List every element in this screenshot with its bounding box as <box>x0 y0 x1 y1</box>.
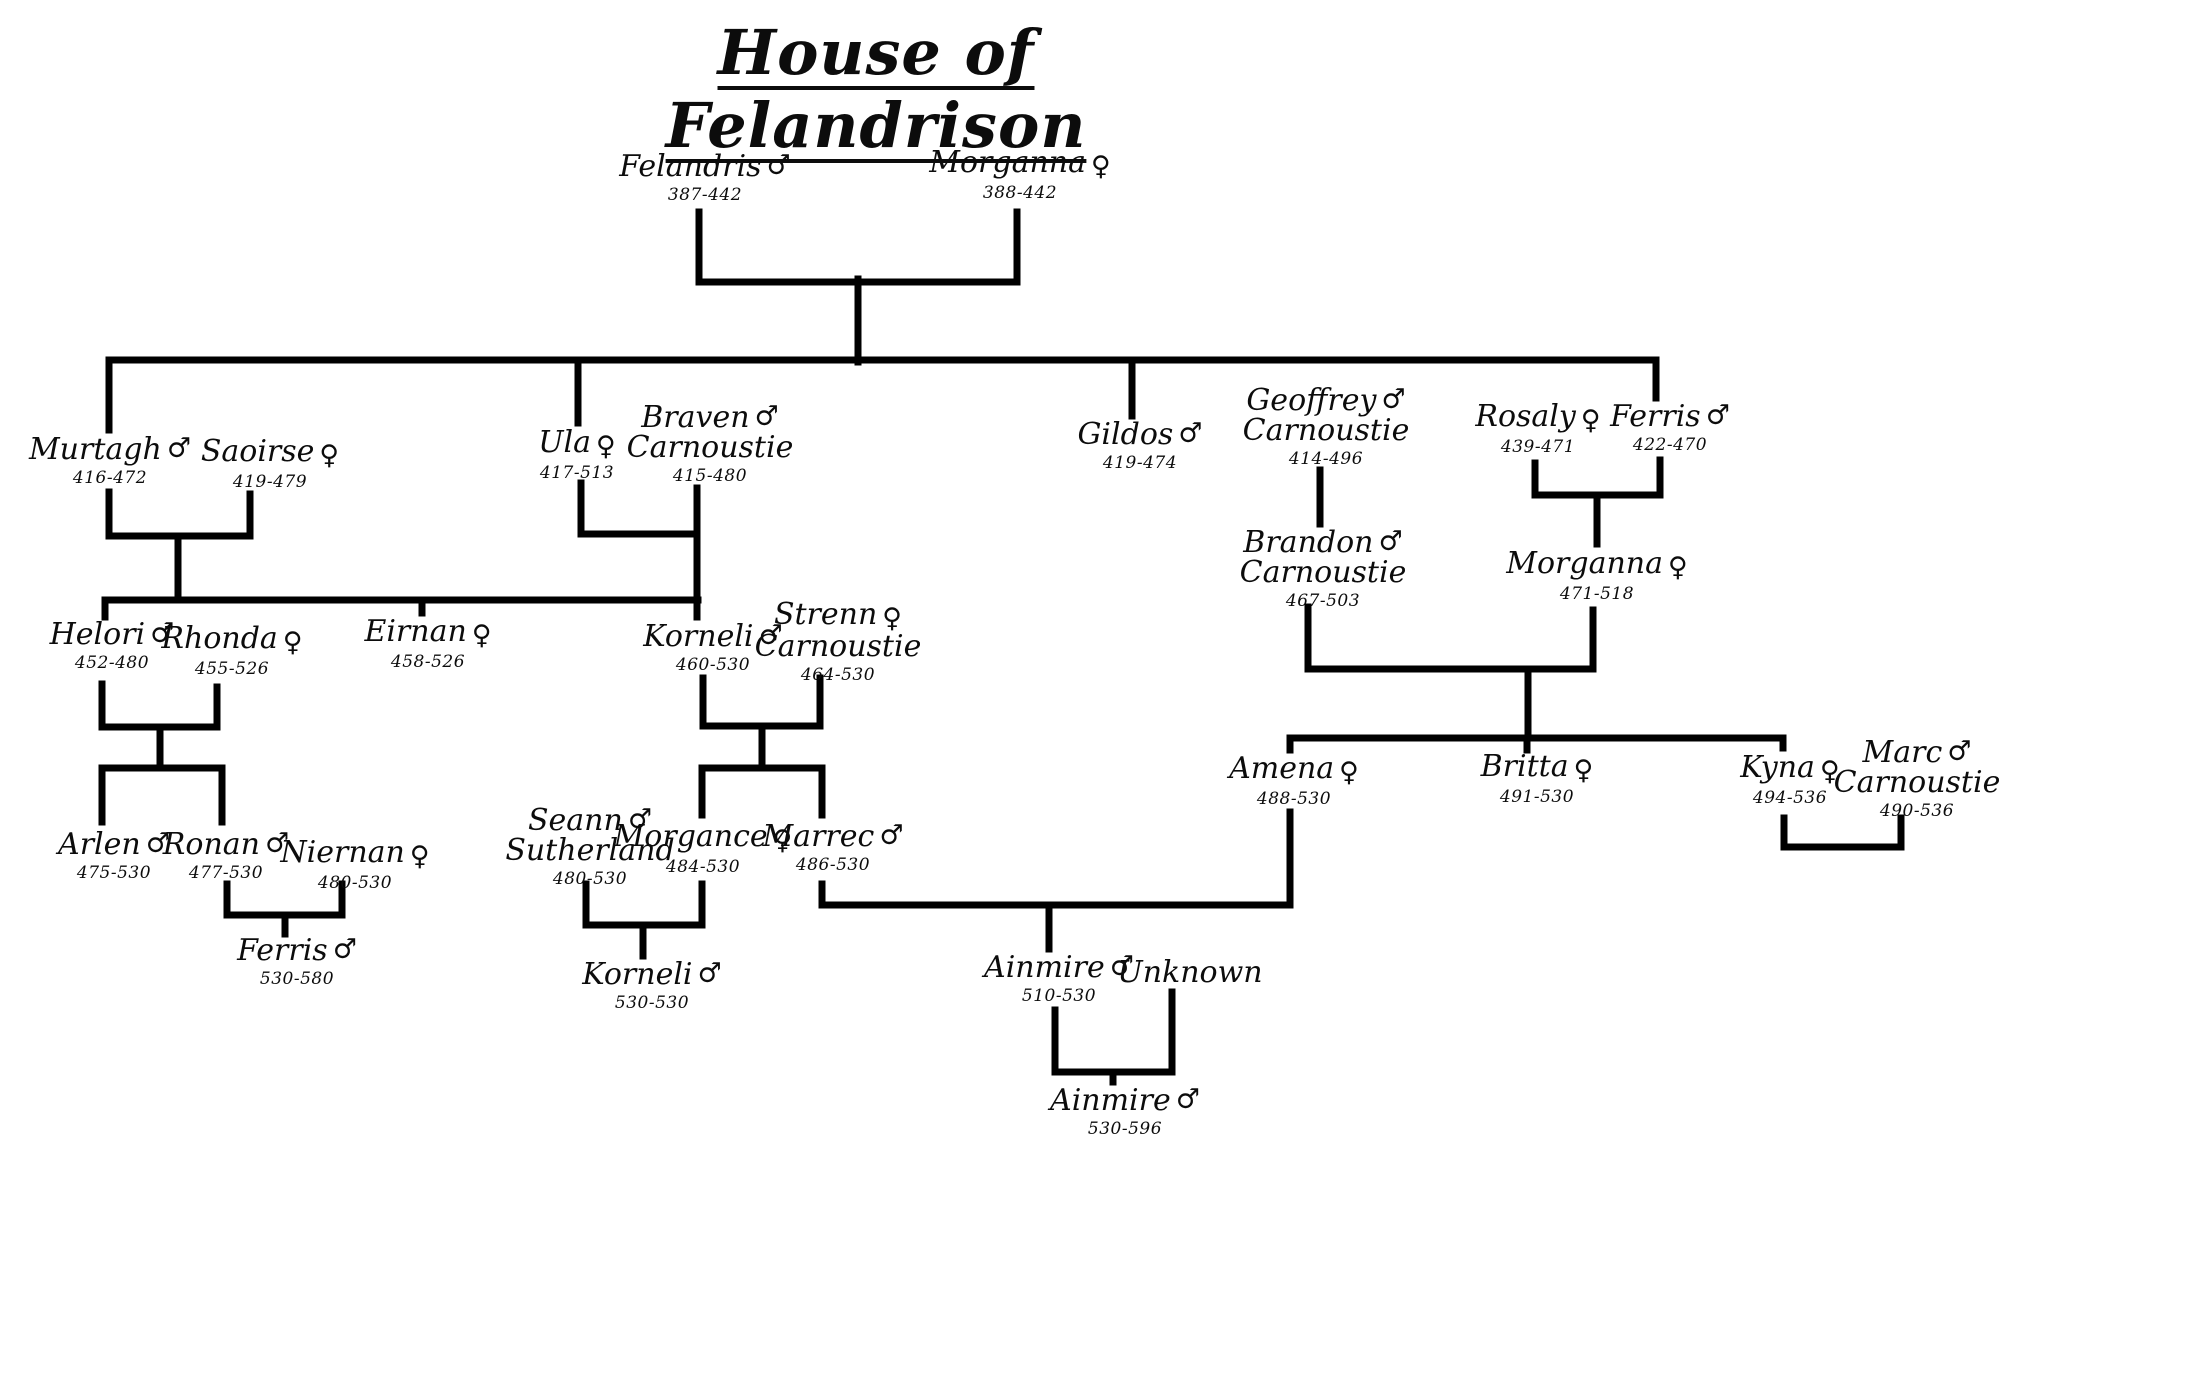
person-dates: 414-496 <box>1196 449 1456 469</box>
person-ferris-sr: Ferris♂ 422-470 <box>1550 402 1790 455</box>
line-helori-children-bar <box>102 768 222 822</box>
person-morganna-jr: Morganna♀ 471-518 <box>1477 549 1717 604</box>
line-kyna-marc-marriage <box>1784 818 1901 847</box>
person-dates: 488-530 <box>1174 789 1414 809</box>
person-dates: 467-503 <box>1193 591 1453 611</box>
female-icon: ♀ <box>1339 757 1359 788</box>
person-dates: 530-580 <box>177 969 417 989</box>
line-murtagh-saoirse-marriage <box>109 492 250 600</box>
male-icon: ♂ <box>1378 526 1402 557</box>
female-icon: ♀ <box>1091 151 1111 182</box>
person-saoirse: Saoirse♀ 419-479 <box>150 437 390 492</box>
person-marrec: Marrec♂ 486-530 <box>713 822 953 875</box>
family-tree-canvas: House of Felandrison Felandris♂ 387-442 … <box>0 0 2198 1390</box>
person-unknown-spouse: Unknown <box>1070 958 1310 988</box>
person-korneli-jr: Korneli♂ 530-530 <box>532 960 772 1013</box>
female-icon: ♀ <box>410 841 430 872</box>
person-dates: 530-596 <box>1005 1119 1245 1139</box>
female-icon: ♀ <box>1574 755 1594 786</box>
line-brandon-morganna-marriage <box>1308 607 1593 738</box>
person-dates: 480-530 <box>235 873 475 893</box>
male-icon: ♂ <box>1947 736 1971 767</box>
male-icon: ♂ <box>1176 1084 1200 1115</box>
person-amena: Amena♀ 488-530 <box>1174 754 1414 809</box>
person-niernan: Niernan♀ 480-530 <box>235 838 475 893</box>
female-icon: ♀ <box>472 620 492 651</box>
person-dates: 415-480 <box>580 466 840 486</box>
male-icon: ♂ <box>767 150 791 181</box>
person-dates: 471-518 <box>1477 584 1717 604</box>
male-icon: ♂ <box>755 401 779 432</box>
line-korneli-children-bar <box>702 768 822 815</box>
male-icon: ♂ <box>698 958 722 989</box>
page-title: House of Felandrison <box>526 16 1226 162</box>
line-korneli-strenn-marriage <box>703 678 820 768</box>
person-dates: 419-479 <box>150 472 390 492</box>
person-dates: 388-442 <box>900 183 1140 203</box>
line-rosaly-ferris-marriage <box>1535 460 1660 544</box>
person-brandon-carnoustie: Brandon♂ Carnoustie 467-503 <box>1193 528 1453 611</box>
person-dates: 530-530 <box>532 993 772 1013</box>
person-dates: 464-530 <box>708 665 968 685</box>
tree-connector-lines <box>0 0 2198 1390</box>
person-morganna-sr: Morganna♀ 388-442 <box>900 148 1140 203</box>
person-dates: 458-526 <box>308 652 548 672</box>
male-icon: ♂ <box>879 820 903 851</box>
person-dates: 491-530 <box>1417 787 1657 807</box>
person-britta: Britta♀ 491-530 <box>1417 752 1657 807</box>
person-dates: 422-470 <box>1550 435 1790 455</box>
person-geoffrey-carnoustie: Geoffrey♂ Carnoustie 414-496 <box>1196 386 1456 469</box>
line-seann-morgance-marriage <box>586 884 702 956</box>
line-helori-rhonda-marriage <box>102 684 217 768</box>
female-icon: ♀ <box>283 627 303 658</box>
person-braven-carnoustie: Braven♂ Carnoustie 415-480 <box>580 403 840 486</box>
line-felandris-morganna-marriage <box>699 212 1017 362</box>
person-felandris: Felandris♂ 387-442 <box>585 152 825 205</box>
person-dates: 387-442 <box>585 185 825 205</box>
person-ainmire-jr: Ainmire♂ 530-596 <box>1005 1086 1245 1139</box>
person-marc-carnoustie: Marc♂ Carnoustie 490-536 <box>1787 738 2047 821</box>
male-icon: ♂ <box>1381 384 1405 415</box>
person-dates: 490-536 <box>1787 801 2047 821</box>
male-icon: ♂ <box>1706 400 1730 431</box>
person-eirnan: Eirnan♀ 458-526 <box>308 617 548 672</box>
female-icon: ♀ <box>1668 552 1688 583</box>
person-strenn-carnoustie: Strenn♀ Carnoustie 464-530 <box>708 600 968 685</box>
person-dates: 486-530 <box>713 855 953 875</box>
female-icon: ♀ <box>319 440 339 471</box>
male-icon: ♂ <box>333 934 357 965</box>
person-ferris-jr: Ferris♂ 530-580 <box>177 936 417 989</box>
